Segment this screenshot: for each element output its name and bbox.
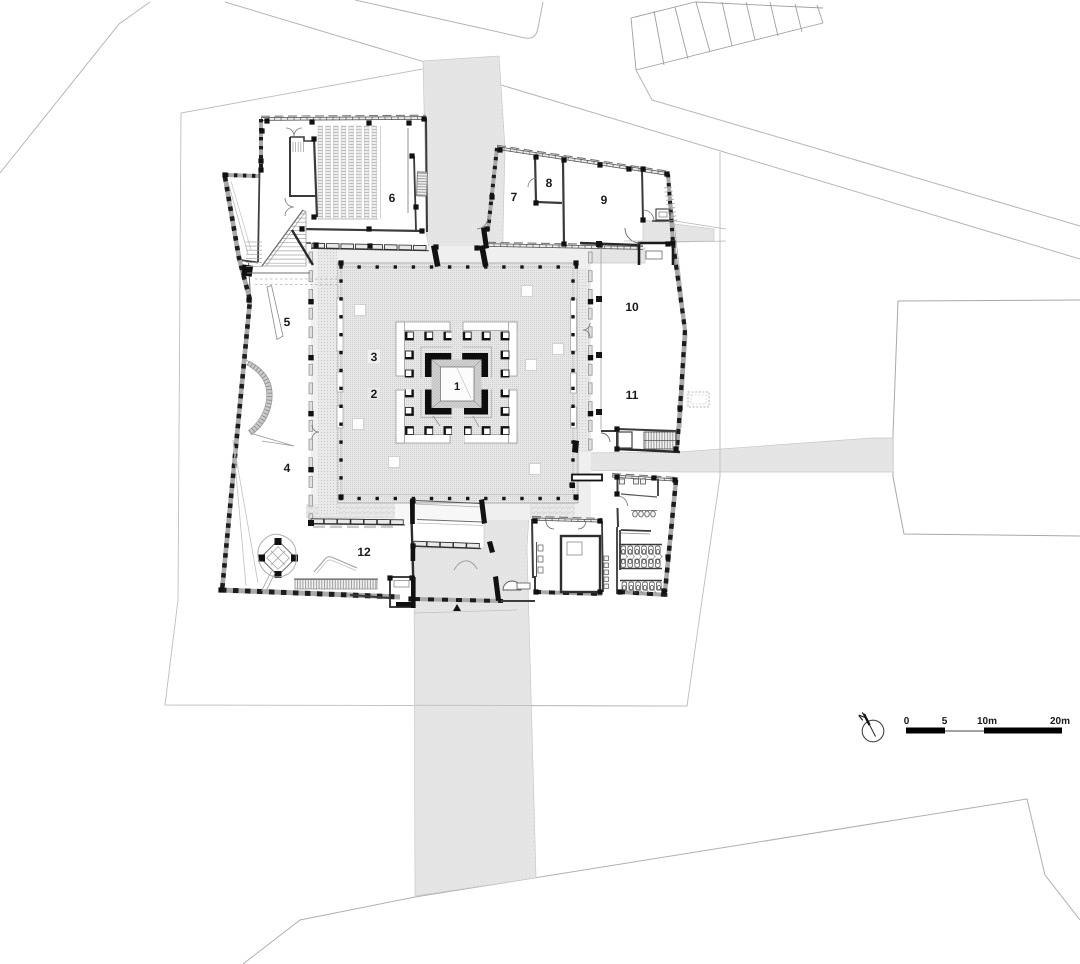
svg-text:0: 0	[904, 716, 910, 727]
svg-text:11: 11	[626, 388, 639, 402]
svg-text:4: 4	[284, 461, 291, 475]
svg-text:3: 3	[371, 350, 378, 364]
svg-text:20m: 20m	[1050, 716, 1070, 727]
svg-text:9: 9	[601, 193, 608, 207]
svg-text:5: 5	[942, 716, 948, 727]
svg-text:10: 10	[625, 300, 639, 314]
svg-text:5: 5	[284, 315, 291, 329]
svg-text:10m: 10m	[977, 716, 997, 727]
svg-text:2: 2	[371, 387, 378, 401]
svg-text:6: 6	[389, 191, 396, 205]
svg-text:7: 7	[511, 190, 518, 204]
svg-text:12: 12	[357, 545, 371, 559]
svg-text:8: 8	[546, 176, 553, 190]
svg-text:1: 1	[454, 381, 460, 393]
